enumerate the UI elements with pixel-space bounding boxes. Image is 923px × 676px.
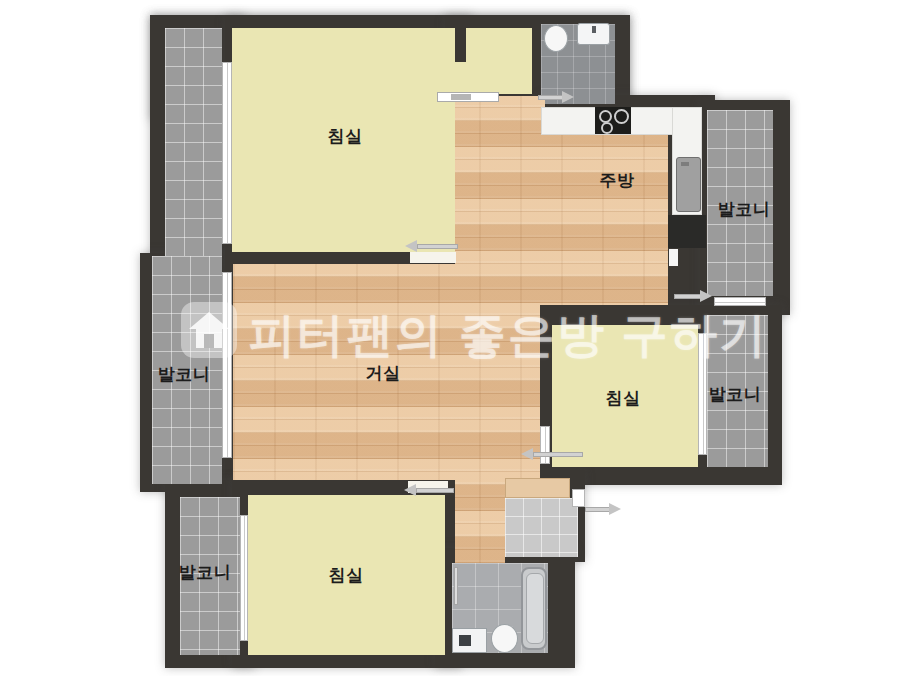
faucet-icon — [592, 26, 596, 33]
basin-bowl — [459, 635, 471, 646]
fridge-handle — [681, 162, 689, 166]
room-label-kitchen: 주방 — [600, 169, 635, 192]
room-label-balcony-left: 발코니 — [158, 363, 211, 386]
room-label-bedroom-bottom: 침실 — [329, 564, 364, 587]
door-gap-bedroom-midright — [540, 426, 550, 464]
shoe-cabinet-icon — [505, 478, 570, 498]
door-gap-kitchen-balcony — [669, 249, 678, 266]
kitchen-storage-unit — [668, 215, 706, 248]
sliding-door-alcove — [437, 92, 499, 102]
shower-rail-icon — [454, 567, 458, 605]
toilet-icon — [544, 25, 568, 52]
bathtub-icon — [521, 567, 547, 650]
room-label-balcony-bottom-left: 발코니 — [179, 561, 232, 584]
watermark-text: 피터팬의 좋은방 구하기 — [248, 304, 768, 367]
burner-icon — [614, 109, 629, 124]
room-label-balcony-top-right: 발코니 — [718, 198, 771, 221]
window-balcony-living — [222, 272, 232, 458]
balcony-left-upper-floor — [165, 28, 222, 256]
stove-icon — [595, 107, 631, 134]
house-icon — [180, 301, 238, 359]
toilet-icon — [491, 624, 518, 653]
bathtub-rim — [526, 573, 544, 644]
burner-icon — [601, 122, 613, 134]
entry-floor — [505, 498, 578, 557]
sliding-door-handle — [451, 94, 471, 100]
alcove-passage — [455, 62, 466, 94]
door-gap-bedroom-topleft — [410, 252, 456, 263]
room-label-bedroom-mid-right: 침실 — [606, 387, 641, 410]
room-label-bedroom-top-left: 침실 — [328, 125, 363, 148]
sink-icon — [577, 23, 610, 45]
refrigerator-icon — [676, 157, 701, 212]
alcove-floor — [466, 28, 532, 94]
window-balcony-bedroom-topleft — [222, 62, 232, 244]
window-balcony-bedroom-bottom — [240, 515, 248, 641]
room-label-balcony-mid-right: 발코니 — [709, 383, 762, 406]
washbasin-icon — [452, 628, 487, 653]
entry-door-panel — [572, 489, 585, 507]
floorplan-canvas: 침실 거실 주방 침실 침실 발코니 발코니 발코니 발코니 피터팬의 좋은방 … — [0, 0, 923, 676]
